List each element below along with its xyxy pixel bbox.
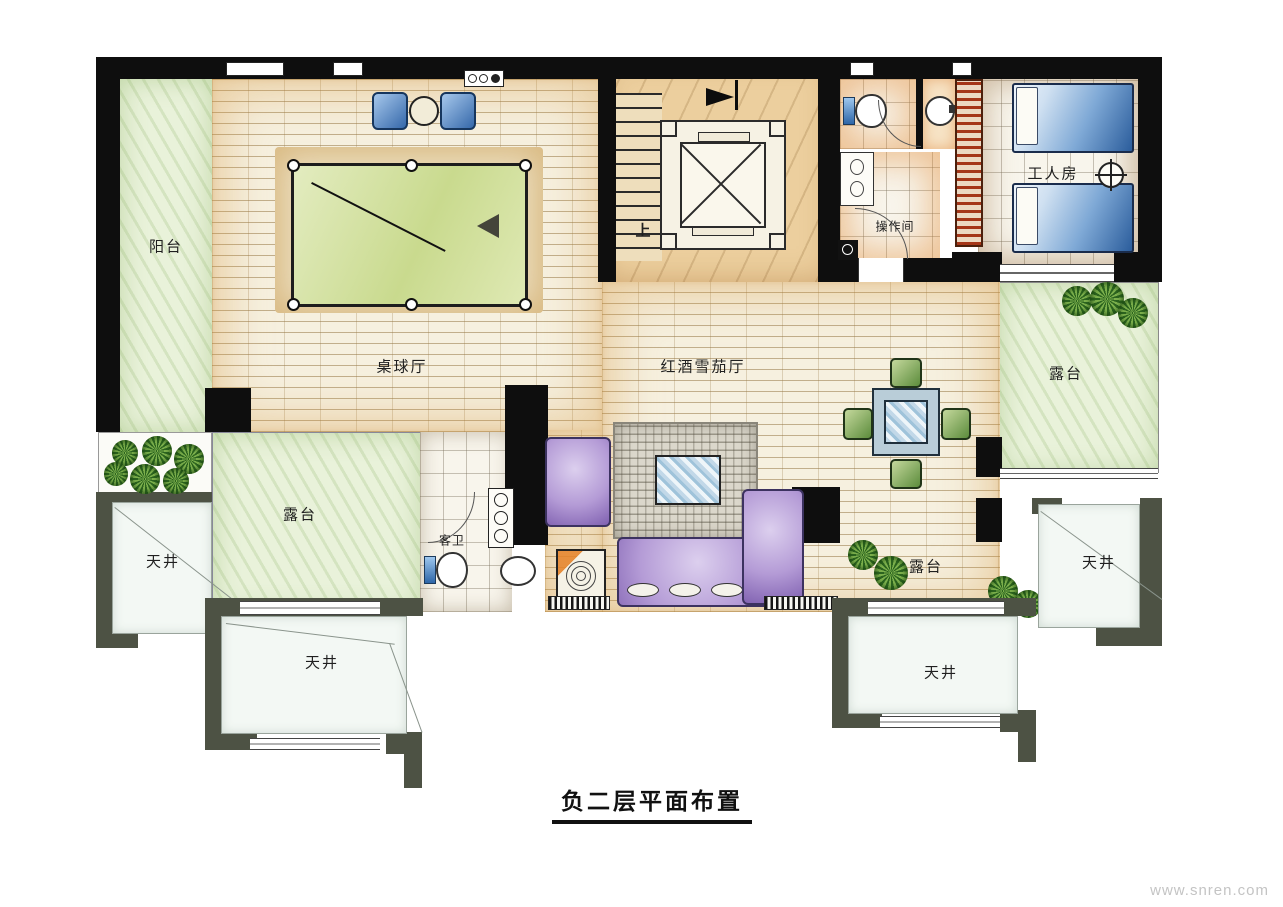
label-wine-cigar-hall: 红酒雪茄厅 <box>660 356 745 377</box>
appliance-knob <box>494 529 508 543</box>
worker-room-window <box>1000 264 1114 282</box>
chaise-lounge <box>742 489 804 605</box>
label-stairs-up: 上 <box>635 220 652 241</box>
lightwell-wall <box>1140 498 1162 630</box>
elevator-top-slab <box>698 132 750 142</box>
table-pocket <box>405 298 418 311</box>
wine-table-glass <box>884 400 928 444</box>
elevator-corner <box>769 233 786 250</box>
lounge-chair <box>372 92 408 130</box>
dining-chair <box>890 459 922 489</box>
wall-stair-right <box>818 57 840 282</box>
table-pocket <box>405 159 418 172</box>
wall-corner-right <box>1114 252 1162 282</box>
wine-table <box>872 388 940 456</box>
vent-grille <box>548 596 610 610</box>
label-worker-room: 工人房 <box>1027 163 1078 184</box>
guest-toilet-tank <box>424 556 436 584</box>
lightwell-window <box>880 716 1000 728</box>
terrace-right-bottom-rail <box>1000 468 1158 479</box>
bed-pillow <box>1016 87 1038 145</box>
label-terrace-right: 露台 <box>1049 363 1083 384</box>
coffee-table <box>655 455 721 505</box>
spiral-ring <box>576 571 586 581</box>
vanity-sink <box>850 181 864 197</box>
round-side-table <box>409 96 439 126</box>
plant <box>874 556 908 590</box>
elevator-corner <box>769 120 786 137</box>
bar-counter-icon <box>464 70 504 87</box>
lightwell-diagonal <box>389 643 422 733</box>
wall-corner-belowrack <box>952 252 1002 282</box>
armchair <box>545 437 611 527</box>
billiards-table <box>291 163 528 307</box>
lightwell-wall <box>205 598 221 750</box>
worker-bed <box>1012 83 1134 153</box>
worker-bed <box>1012 183 1134 253</box>
dining-chair <box>890 358 922 388</box>
vent-grille <box>764 596 838 610</box>
elevator <box>660 120 786 250</box>
elevator-corner <box>660 120 677 137</box>
lightwell-wall <box>1096 628 1162 646</box>
label-terrace-left: 露台 <box>283 504 317 525</box>
dining-chair <box>843 408 873 440</box>
label-lightwell-right-center: 天井 <box>924 662 958 683</box>
wall-worker-right <box>1138 57 1162 267</box>
storage-rack <box>955 79 983 247</box>
wall-left <box>96 57 120 432</box>
sofa-cushion <box>627 583 659 597</box>
lounge-chair <box>440 92 476 130</box>
appliance-knob <box>494 511 508 525</box>
elevator-corner <box>660 233 677 250</box>
lightwell-wall <box>404 732 422 788</box>
symbol-cross-v <box>1110 159 1112 191</box>
floor-drain-appliance <box>838 240 858 260</box>
top-window-4 <box>952 62 972 76</box>
table-pocket <box>519 298 532 311</box>
plant <box>130 464 160 494</box>
counter-dot-icon <box>479 74 488 83</box>
counter-dot-icon <box>468 74 477 83</box>
label-balcony: 阳台 <box>149 236 183 257</box>
table-pocket <box>287 298 300 311</box>
top-window-1 <box>226 62 284 76</box>
spiral-side-table <box>556 549 606 603</box>
plant <box>163 468 189 494</box>
plant <box>104 462 128 486</box>
label-billiards-hall: 桌球厅 <box>376 356 427 377</box>
watermark: www.snren.com <box>1150 882 1269 899</box>
lightwell-window <box>868 601 1004 615</box>
floorplan-canvas: 阳台 桌球厅 红酒雪茄厅 工人房 操作间 客卫 露台 露台 露台 天井 天井 天… <box>0 0 1283 907</box>
plant <box>848 540 878 570</box>
drain-circle <box>842 244 853 255</box>
dining-chair <box>941 408 971 440</box>
table-pocket <box>287 159 300 172</box>
lightwell-window <box>240 601 380 615</box>
lightwell-wall <box>96 500 112 648</box>
label-lightwell-right: 天井 <box>1082 552 1116 573</box>
plan-title: 负二层平面布置 <box>552 782 752 824</box>
column-terrace-a <box>976 437 1002 477</box>
plant <box>142 436 172 466</box>
label-lightwell-left-center: 天井 <box>305 652 339 673</box>
column-left <box>205 388 251 432</box>
top-window-2 <box>333 62 363 76</box>
lightwell-wall <box>1018 710 1036 762</box>
bed-pillow <box>1016 187 1038 245</box>
counter-dot-icon <box>491 74 500 83</box>
lightwell-left-center <box>221 616 407 734</box>
cue-stick <box>311 182 446 252</box>
appliance-knob <box>494 493 508 507</box>
sofa-cushion <box>711 583 743 597</box>
vanity-sink <box>850 159 864 175</box>
lightwell-window <box>250 738 380 750</box>
table-pocket <box>519 159 532 172</box>
top-window-3 <box>850 62 874 76</box>
elevator-cab <box>680 142 766 228</box>
plant <box>1062 286 1092 316</box>
lightwell-diagonal <box>226 623 395 645</box>
plant <box>1118 298 1148 328</box>
guest-toilet-bowl <box>436 552 468 588</box>
triangle-rack-icon <box>477 214 499 238</box>
terrace-left-floor <box>212 432 423 614</box>
ops-door-gap <box>858 258 904 282</box>
vanity-counter <box>840 152 874 206</box>
sofa-cushion <box>669 583 701 597</box>
label-guest-bath: 客卫 <box>439 532 465 549</box>
label-terrace-bottom: 露台 <box>909 556 943 577</box>
arrow-post <box>735 80 738 110</box>
pedestal-sink <box>500 556 536 586</box>
appliance-strip <box>488 488 514 548</box>
stairs-direction-arrow-icon <box>706 88 734 106</box>
label-operation-room: 操作间 <box>875 218 914 235</box>
title-underline <box>552 820 752 822</box>
toilet-tank <box>843 97 855 125</box>
label-lightwell-left: 天井 <box>146 551 180 572</box>
column-terrace-b <box>976 498 1002 542</box>
ceiling-symbol-icon <box>1098 162 1124 188</box>
wall-stair-left <box>598 57 616 282</box>
